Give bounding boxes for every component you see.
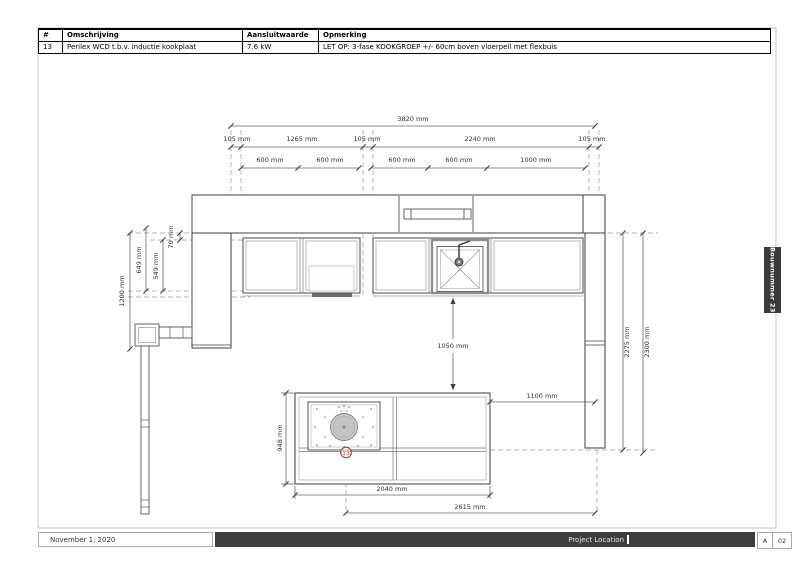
right-wall-column: [585, 233, 605, 448]
dim-600-1: 600 mm: [256, 156, 283, 164]
floor-plan-drawing: 13: [0, 0, 800, 566]
cell-opmerking: LET OP: 3-fase KOOKGROEP +/- 60cm boven …: [319, 42, 771, 54]
bouwnummer-tab: Bouwnummer 23: [764, 247, 781, 313]
left-wall-column: [192, 233, 231, 348]
dim-948: 948 mm: [276, 424, 284, 451]
dim-600-2: 600 mm: [316, 156, 343, 164]
left-duct-and-wall: [135, 324, 192, 514]
dim-600-3: 600 mm: [388, 156, 415, 164]
cell-aansluitwaarde: 7.6 kW: [243, 42, 319, 54]
dim-105-right: 105 mm: [578, 135, 605, 143]
dim-1100: 1100 mm: [526, 392, 557, 400]
dim-600-4: 600 mm: [445, 156, 472, 164]
dim-105-left: 105 mm: [223, 135, 250, 143]
spec-table-header-row: # Omschrijving Aansluitwaarde Opmerking: [39, 29, 771, 42]
dim-2240: 2240 mm: [464, 135, 495, 143]
spec-table-row: 13 Perilex WCD t.b.v. inductie kookplaat…: [39, 42, 771, 54]
col-aansluitwaarde: Aansluitwaarde: [243, 29, 319, 42]
footer-date: November 1, 2020: [38, 532, 213, 547]
col-omschrijving: Omschrijving: [63, 29, 243, 42]
project-location-label: Project Location: [568, 536, 624, 544]
dim-549: 549 mm: [152, 252, 160, 279]
dim-70: 70 mm: [167, 225, 175, 248]
kitchen-island: 13: [295, 393, 490, 484]
item-marker-label: 13: [342, 450, 350, 457]
footer-title-bar: Project Location: [215, 532, 755, 547]
dim-649: 649 mm: [135, 246, 143, 273]
dim-2615: 2615 mm: [454, 503, 485, 511]
col-number: #: [39, 29, 63, 42]
dim-2275: 2275 mm: [623, 326, 631, 357]
dim-1000: 1000 mm: [520, 156, 551, 164]
dim-105-mid: 105 mm: [353, 135, 380, 143]
dim-total-width: 3820 mm: [397, 115, 428, 123]
induction-cooktop: [308, 402, 380, 450]
cursor-bar: [627, 535, 629, 544]
sink: [432, 240, 488, 293]
dim-1265: 1265 mm: [286, 135, 317, 143]
cabinet-run-left: [243, 238, 360, 297]
appliance-front: [309, 266, 354, 291]
dim-1050: 1050 mm: [437, 342, 468, 350]
dim-1200: 1200 mm: [118, 275, 126, 306]
footer-revision: A: [757, 532, 773, 549]
spec-table: # Omschrijving Aansluitwaarde Opmerking …: [38, 28, 771, 54]
footer-sheet-number: 02: [772, 532, 792, 549]
cell-number: 13: [39, 42, 63, 54]
cell-omschrijving: Perilex WCD t.b.v. inductie kookplaat: [63, 42, 243, 54]
back-wall: [192, 195, 605, 233]
item-marker-13: 13: [341, 447, 352, 458]
col-opmerking: Opmerking: [319, 29, 771, 42]
dim-2300: 2300 mm: [643, 326, 651, 357]
dim-2040: 2040 mm: [376, 485, 407, 493]
appliance-handle: [312, 294, 352, 298]
